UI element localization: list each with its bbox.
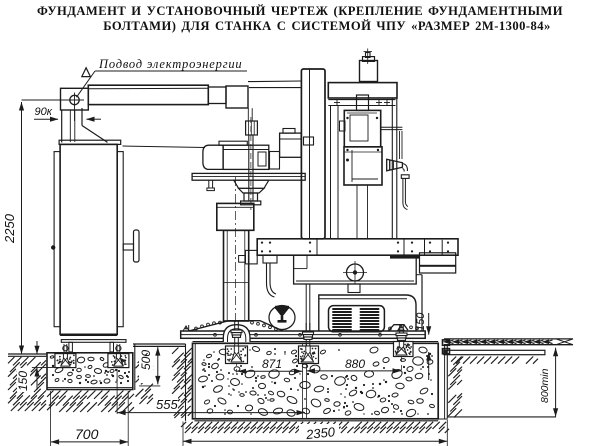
svg-text:Подвод электроэнергии: Подвод электроэнергии (98, 57, 242, 71)
svg-text:871: 871 (262, 357, 282, 371)
svg-text:800min: 800min (539, 368, 551, 403)
svg-text:555: 555 (156, 397, 178, 412)
svg-text:700: 700 (75, 426, 99, 442)
svg-text:500: 500 (139, 350, 153, 370)
svg-text:90к: 90к (35, 106, 53, 118)
svg-text:БОЛТАМИ) ДЛЯ СТАНКА С СИСТ: БОЛТАМИ) ДЛЯ СТАНКА С СИСТЕМОЙ ЧПУ «РАЗМ… (103, 19, 551, 33)
svg-text:880: 880 (345, 357, 365, 371)
svg-text:2250: 2250 (2, 213, 17, 244)
svg-text:ФУНДАМЕНТ И УСТАНОВОЧНЫЙ ЧЕ: ФУНДАМЕНТ И УСТАНОВОЧНЫЙ ЧЕРТЕЖ (КРЕПЛЕН… (37, 4, 563, 18)
svg-text:2350: 2350 (304, 424, 336, 442)
svg-text:150: 150 (16, 371, 30, 391)
svg-text:150: 150 (415, 312, 427, 331)
